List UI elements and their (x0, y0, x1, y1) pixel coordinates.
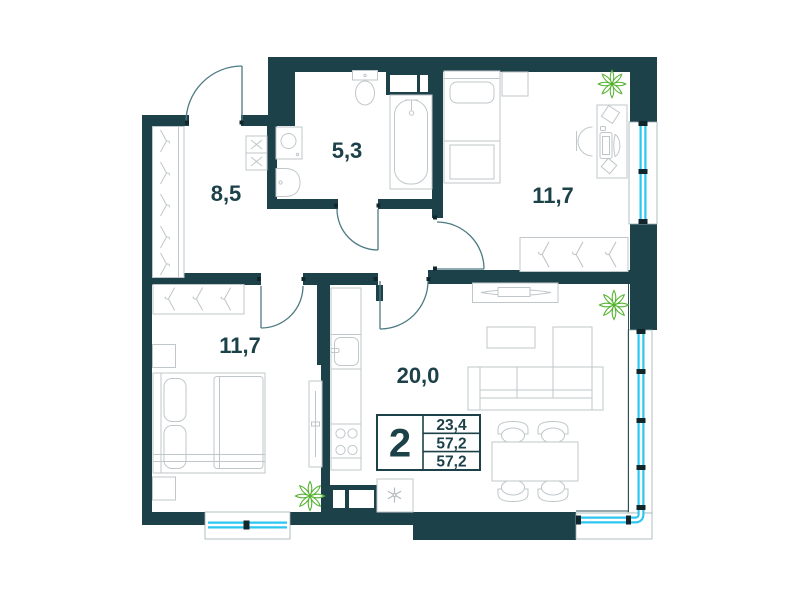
vent-duct (349, 490, 374, 508)
wardrobe-icon (520, 238, 628, 272)
wall-right (630, 224, 657, 330)
fridge-icon (377, 479, 413, 512)
electrical-cabinet-icon (246, 136, 267, 170)
plant-icon (296, 482, 325, 511)
dining-set (492, 422, 578, 502)
bedroom-left-door (261, 286, 303, 328)
wardrobe-icon (153, 127, 185, 278)
single-bed-icon (444, 71, 500, 183)
nightstand-icon (153, 477, 176, 500)
tv-panel-icon (309, 381, 322, 467)
chair-icon (498, 480, 528, 502)
room-area-bathroom: 5,3 (332, 138, 363, 163)
toilet-icon (353, 71, 378, 106)
floor-plan: 8,5 5,3 11,7 11,7 20,0 2 23,4 57,2 57,2 (0, 0, 800, 600)
nightstand-icon (502, 72, 528, 96)
wall (295, 57, 657, 72)
bedroom-top-door (437, 222, 484, 269)
sink-icon (276, 169, 300, 197)
living-room-furniture (468, 283, 603, 502)
area-living: 23,4 (436, 417, 467, 434)
info-box: 2 23,4 57,2 57,2 (377, 415, 480, 471)
wall (317, 285, 330, 365)
desk-chair-icon (577, 127, 593, 156)
kitchen-furniture (331, 288, 413, 512)
plant-icon (598, 70, 626, 98)
double-bed-icon (153, 373, 265, 473)
vent-duct (333, 490, 345, 508)
wall (267, 199, 338, 209)
coffee-table-icon (487, 327, 535, 348)
chair-icon (538, 480, 568, 502)
kitchen-counter-icon (331, 288, 361, 470)
room-area-kitchen-living: 20,0 (397, 363, 440, 388)
wall-bottom (413, 512, 576, 540)
wall-left (142, 115, 152, 525)
room-area-bedroom-top: 11,7 (532, 183, 574, 208)
floor-plan-drawing: 8,5 5,3 11,7 11,7 20,0 2 23,4 57,2 57,2 (0, 0, 800, 600)
room-area-bedroom-left: 11,7 (219, 333, 261, 358)
wall-right (630, 57, 657, 122)
washing-machine-icon (276, 127, 302, 159)
living-room-door (380, 281, 428, 329)
wall (428, 270, 657, 284)
wall-bottom (142, 512, 205, 525)
entrance-door (186, 66, 242, 122)
bathroom-door (337, 209, 378, 250)
nightstand-icon (153, 345, 176, 368)
area-total: 57,2 (436, 435, 466, 452)
area-total-2: 57,2 (436, 454, 466, 471)
bedroom-top-furniture (444, 71, 628, 272)
wall (303, 273, 378, 285)
tv-unit-icon (473, 283, 559, 303)
vent-duct (420, 75, 428, 92)
dining-table-icon (492, 442, 578, 481)
chair-icon (498, 422, 528, 444)
plant-icon (600, 291, 629, 320)
desk-icon (597, 105, 627, 178)
bathtub-icon (390, 95, 432, 189)
wall-bottom (290, 512, 415, 525)
chair-icon (538, 422, 568, 444)
room-area-hallway: 8,5 (211, 181, 242, 206)
wall (432, 57, 443, 218)
rooms-count: 2 (389, 422, 411, 466)
wall (241, 115, 277, 126)
bedroom-left-furniture (153, 285, 323, 501)
vent-duct (390, 75, 417, 92)
wardrobe-icon (153, 285, 244, 315)
